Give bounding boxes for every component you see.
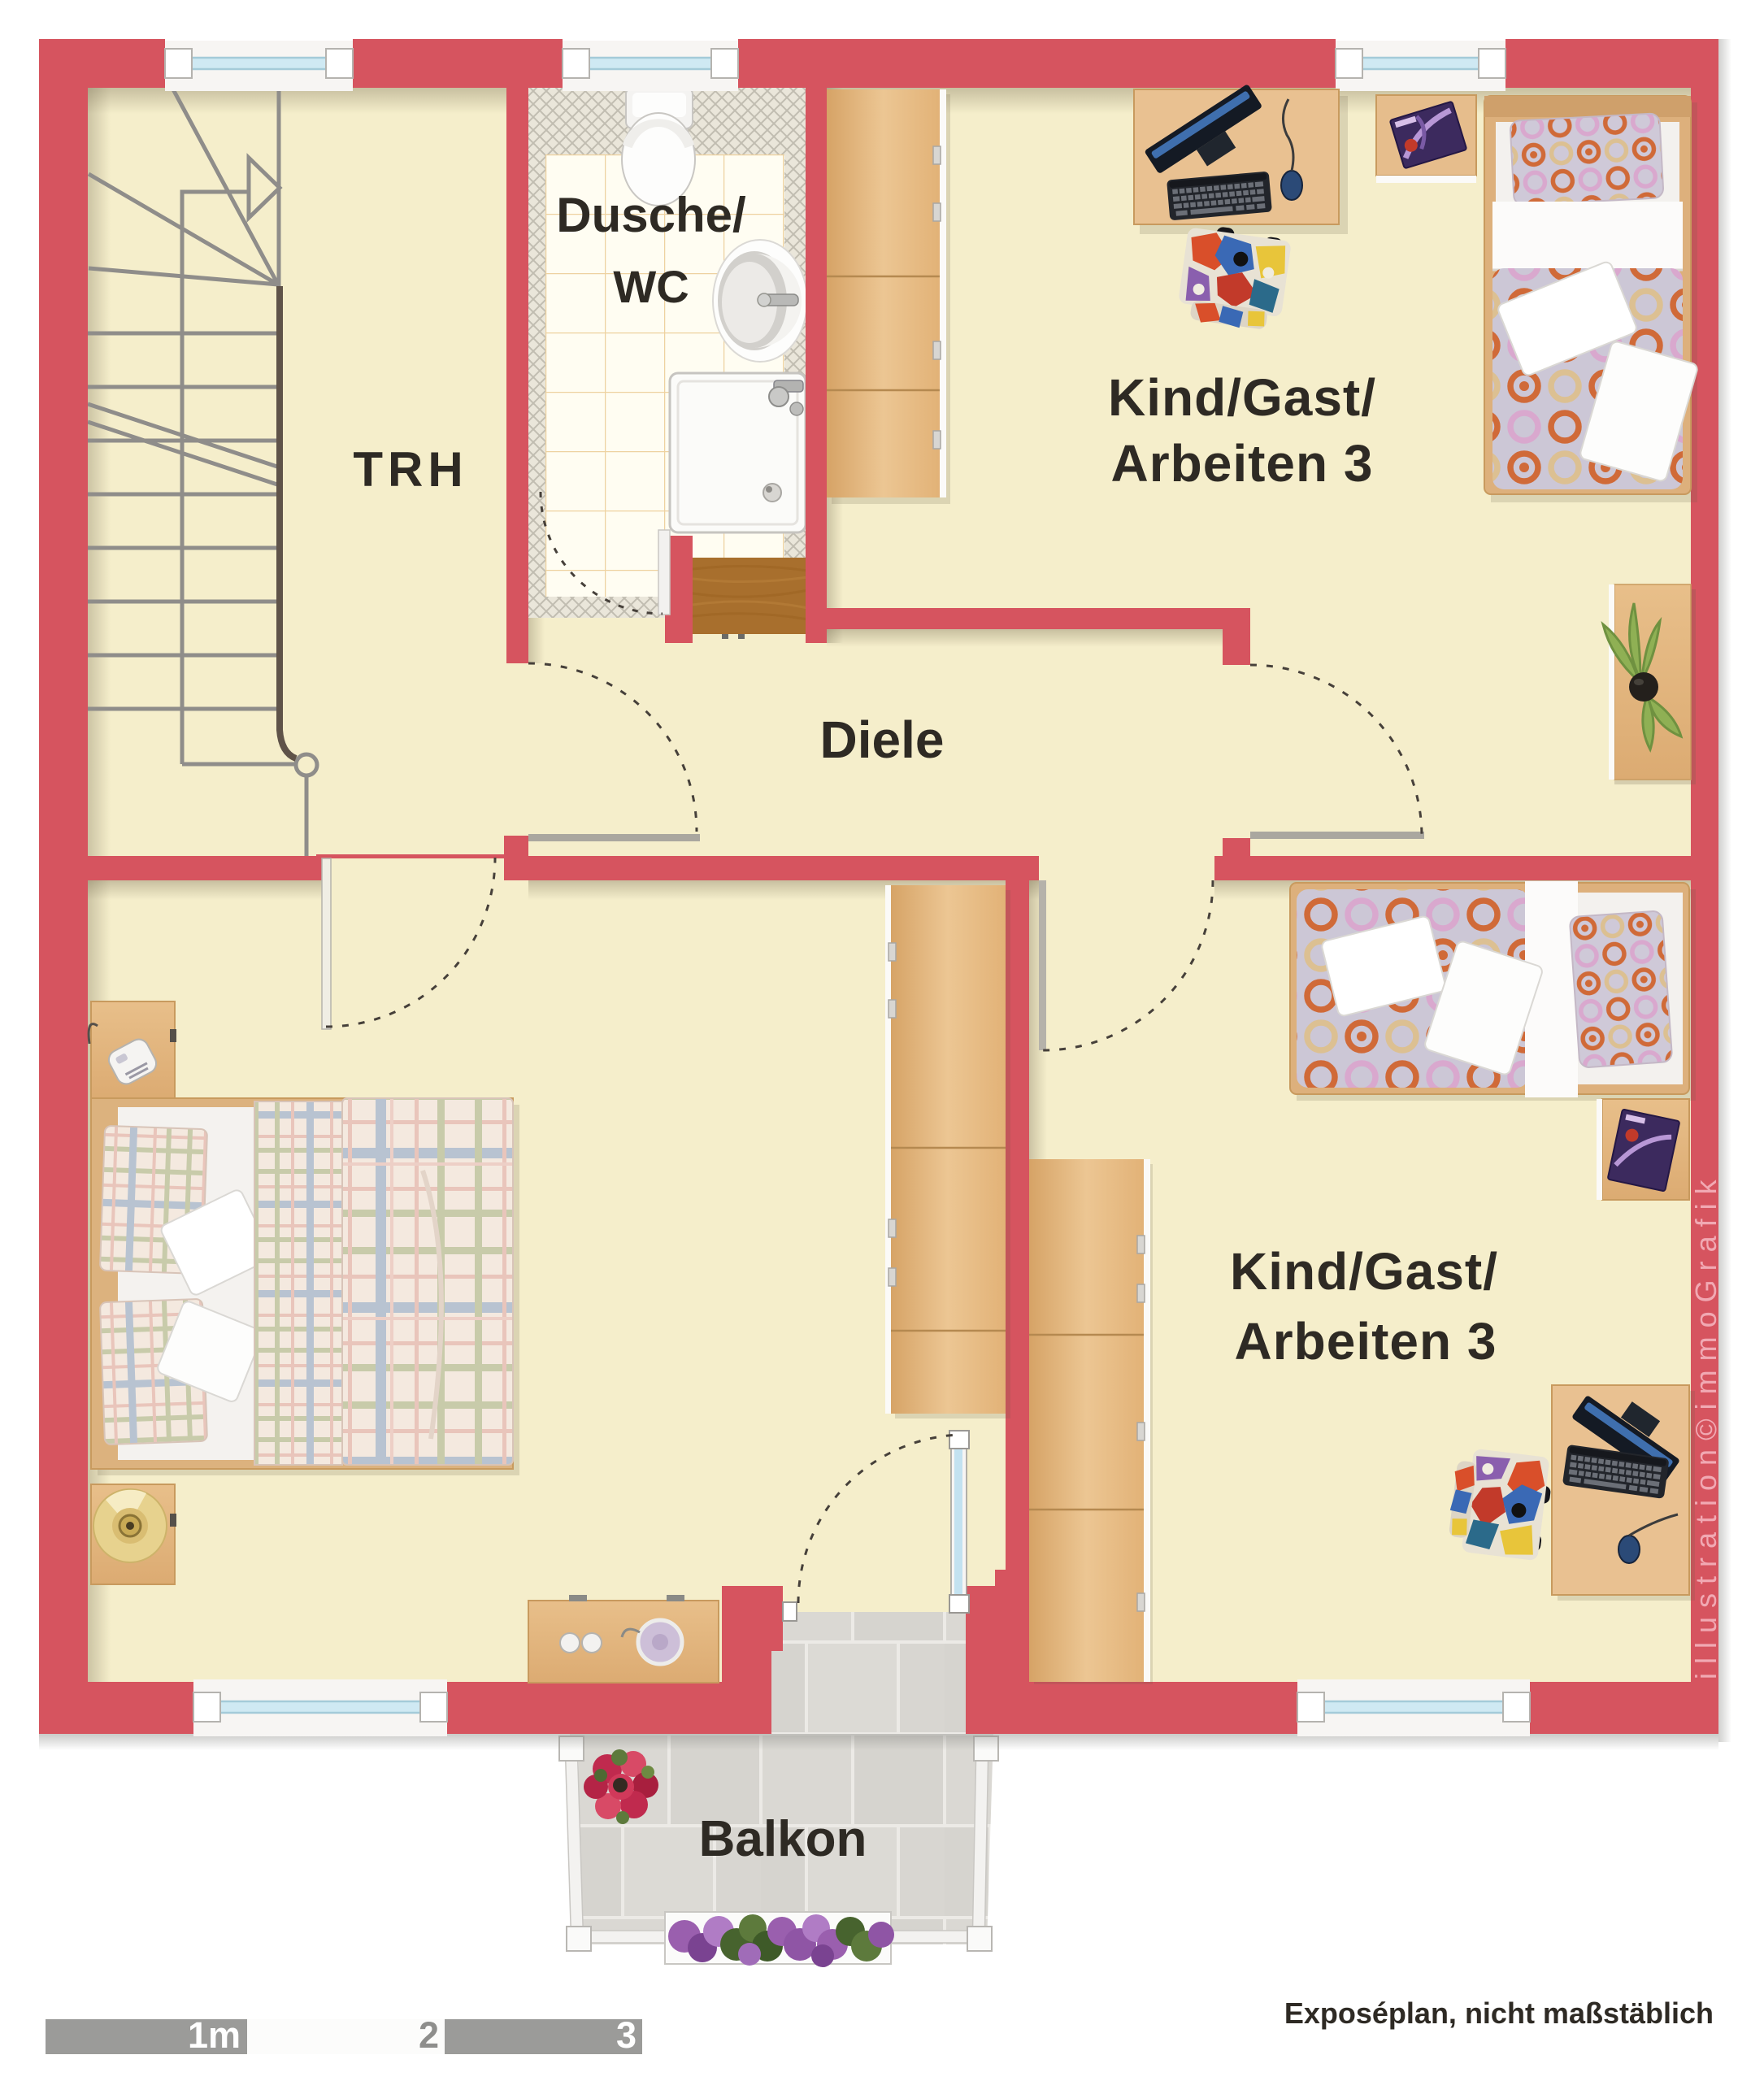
svg-text:TRH: TRH <box>353 442 467 497</box>
svg-text:illustration©immoGrafik: illustration©immoGrafik <box>1689 1171 1723 1679</box>
svg-text:Exposéplan, nicht maßstäblich: Exposéplan, nicht maßstäblich <box>1284 1996 1714 2030</box>
svg-text:Arbeiten 3: Arbeiten 3 <box>1235 1312 1497 1371</box>
svg-text:WC: WC <box>613 261 689 312</box>
svg-text:Kind/Gast/: Kind/Gast/ <box>1230 1242 1498 1301</box>
svg-text:Balkon: Balkon <box>699 1811 867 1867</box>
svg-text:Arbeiten 3: Arbeiten 3 <box>1111 434 1374 493</box>
svg-text:Kind/Gast/: Kind/Gast/ <box>1108 368 1376 427</box>
svg-text:Dusche/: Dusche/ <box>556 188 746 242</box>
svg-text:2: 2 <box>419 2014 439 2056</box>
svg-text:3: 3 <box>616 2014 637 2056</box>
svg-text:Diele: Diele <box>820 710 945 769</box>
svg-text:1m: 1m <box>188 2014 241 2056</box>
